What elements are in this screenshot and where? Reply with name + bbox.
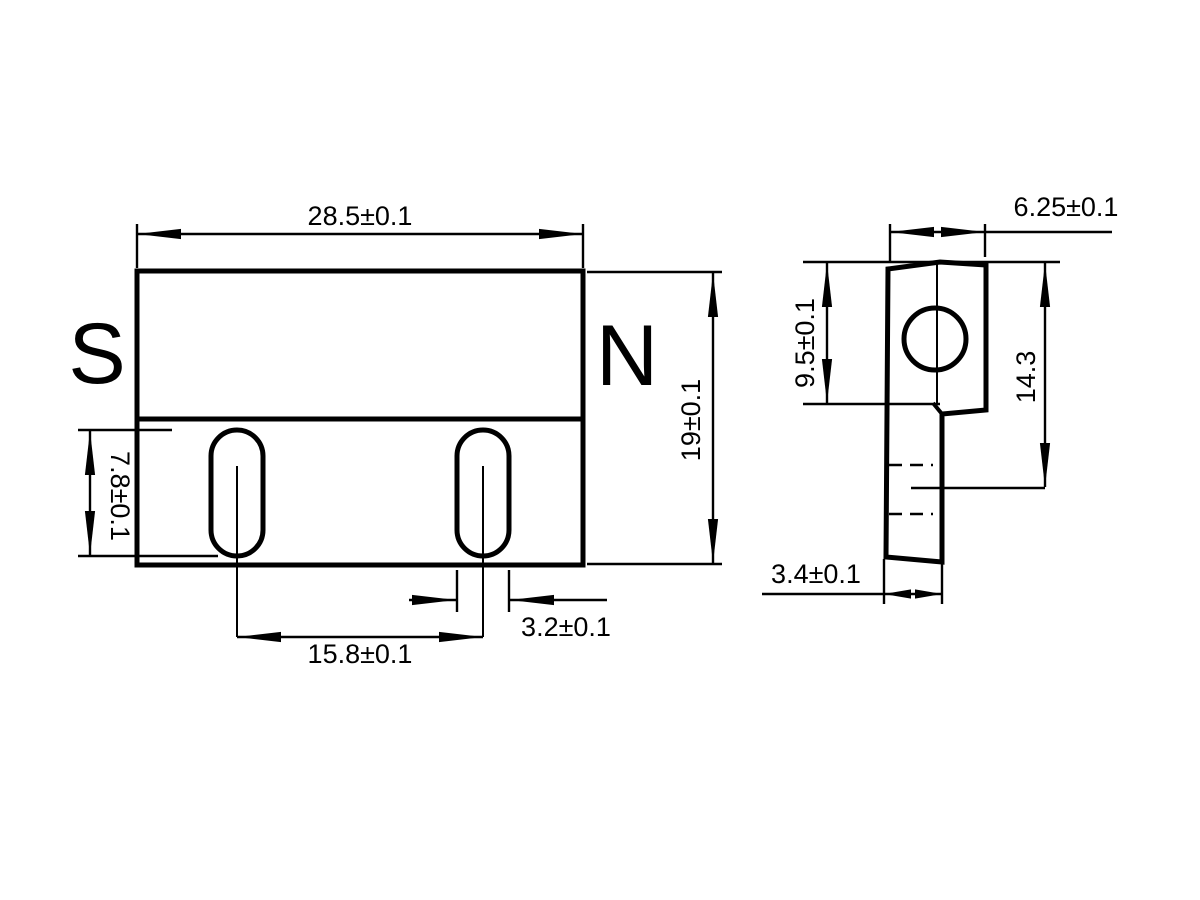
dim-depth: 6.25±0.1 [890,192,1118,261]
dim-overall-width: 28.5±0.1 [137,201,583,268]
dim-hole-center-depth: 14.3 [911,263,1045,488]
dimension-text: 6.25±0.1 [1014,192,1119,222]
pole-south-label: S [68,306,125,402]
dimension-text: 7.8±0.1 [105,451,135,541]
dimension-text: 15.8±0.1 [308,639,413,669]
front-view: S N 28.5±0.1 19±0.1 7.8±0.1 15.8±0.1 [68,201,722,669]
dim-slot-spacing: 15.8±0.1 [237,637,483,669]
dim-slot-height: 7.8±0.1 [78,430,218,556]
dim-slot-width: 3.2±0.1 [409,570,611,642]
drawing-svg: S N 28.5±0.1 19±0.1 7.8±0.1 15.8±0.1 [0,0,1200,900]
dimension-text: 14.3 [1011,351,1041,404]
technical-drawing-canvas: S N 28.5±0.1 19±0.1 7.8±0.1 15.8±0.1 [0,0,1200,900]
hole [904,308,966,370]
pole-north-label: N [596,308,658,404]
dimension-text: 9.5±0.1 [790,298,820,388]
dim-base-thickness: 3.4±0.1 [762,559,942,604]
dimension-text: 3.4±0.1 [771,559,861,589]
dimension-text: 28.5±0.1 [308,201,413,231]
dimension-text: 3.2±0.1 [521,612,611,642]
dimension-text: 19±0.1 [676,379,706,461]
side-view: 6.25±0.1 9.5±0.1 14.3 3.4±0.1 [762,192,1118,604]
